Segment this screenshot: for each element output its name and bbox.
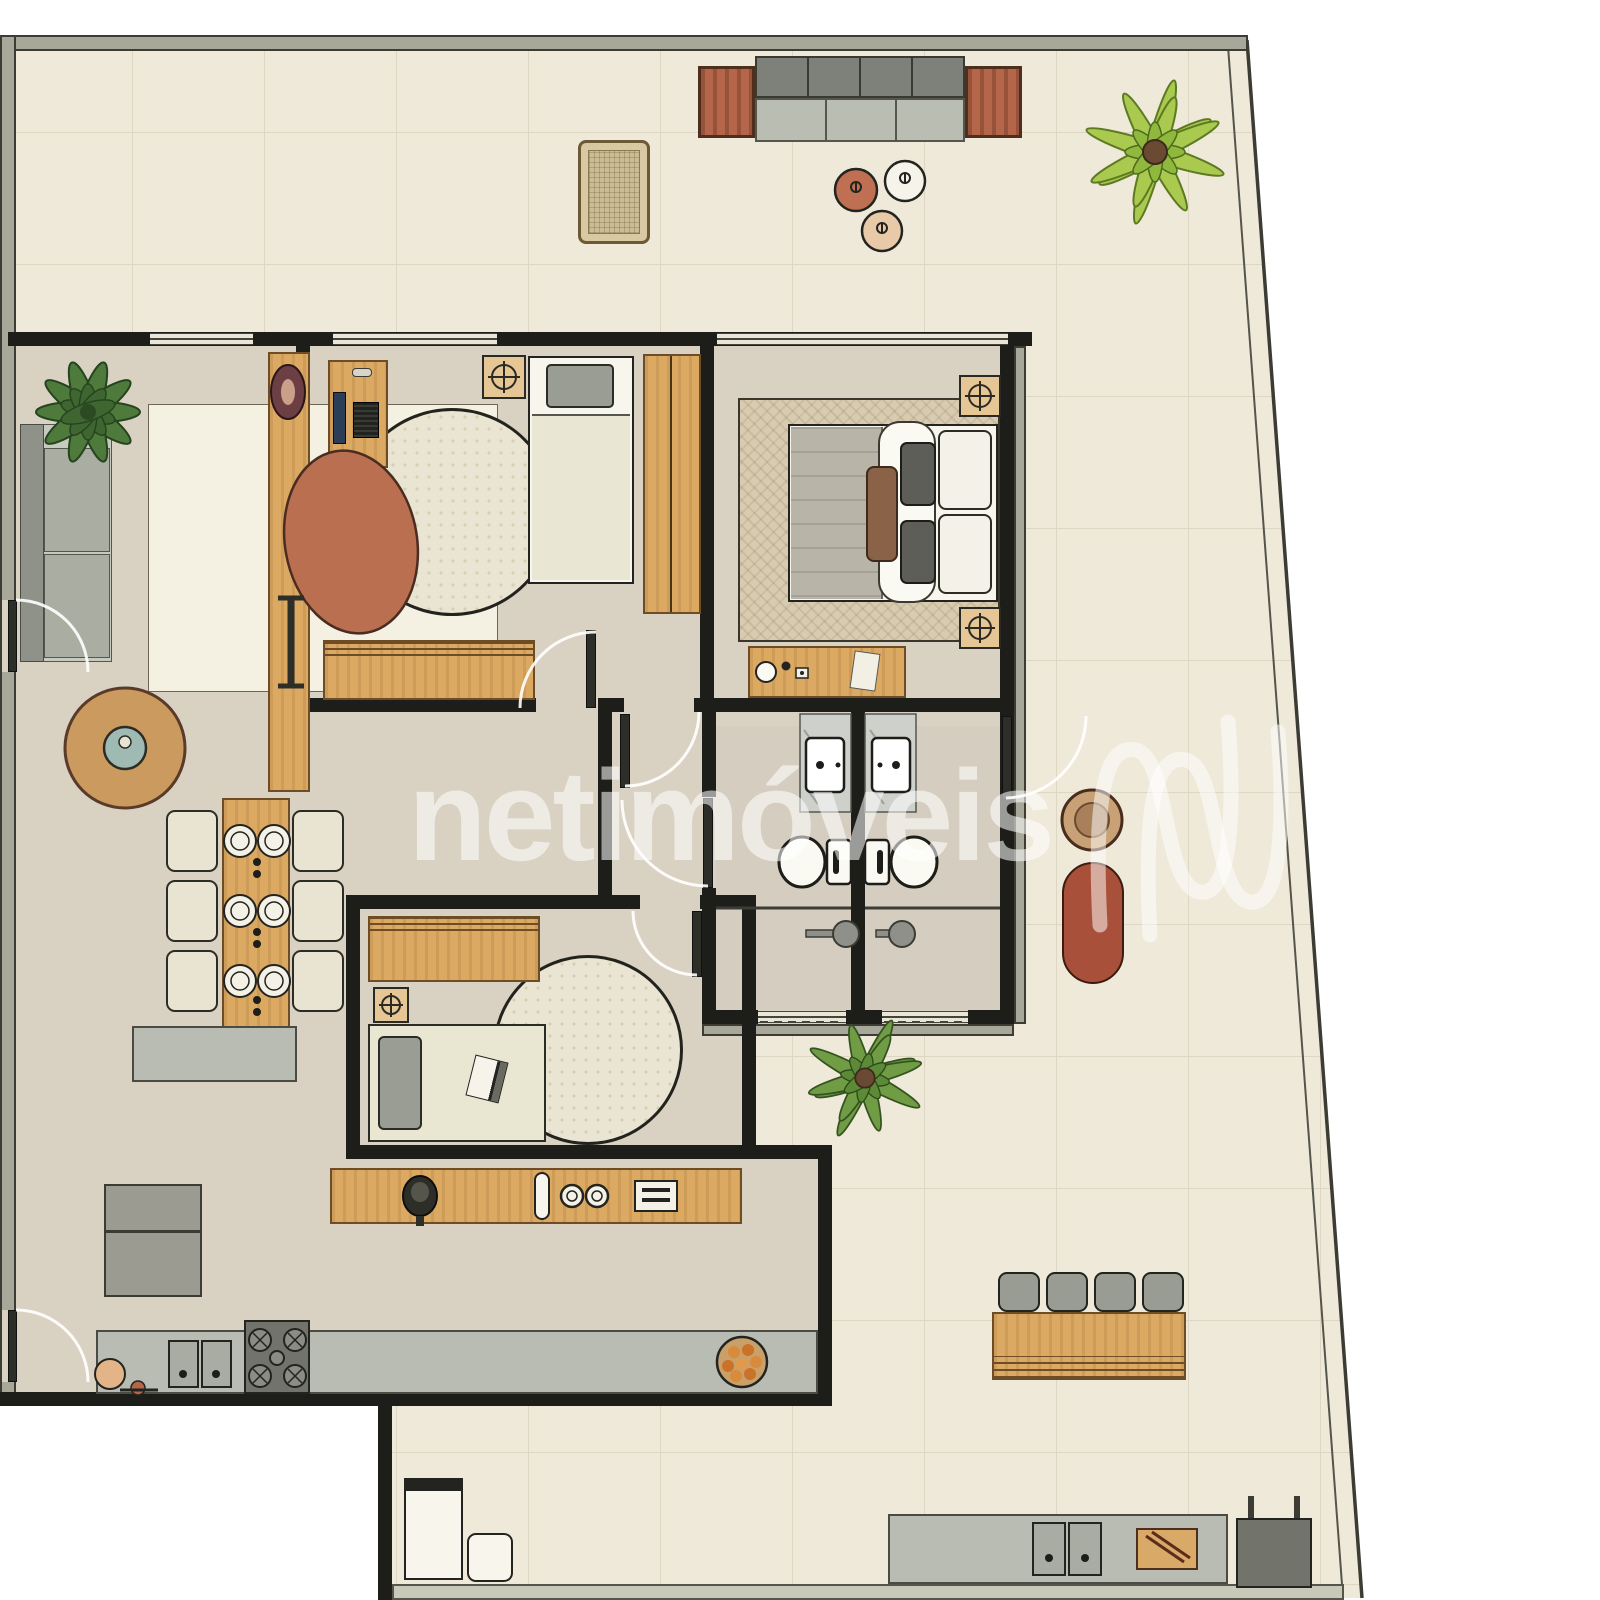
dining-chair (292, 810, 344, 872)
pouf-terracotta (835, 169, 877, 211)
bar-stool (1046, 1272, 1088, 1312)
grill (1236, 1518, 1312, 1588)
palm-plant-top (1084, 78, 1227, 226)
watermark-text: netimóveis (408, 742, 1052, 890)
bar-stool (1094, 1272, 1136, 1312)
desk-monitor (333, 392, 346, 444)
floor-plan: netimóveis (0, 0, 1600, 1600)
wall-east-outer (1014, 346, 1026, 1024)
master-pillow-gray-top (900, 442, 936, 506)
sofa-cushion-top (44, 448, 110, 552)
wall-kitchen-east (818, 1159, 832, 1406)
sofa-cushion-bottom (44, 554, 110, 658)
slanted-boundary-wall (1228, 40, 1362, 1598)
dining-table (222, 798, 290, 1034)
wardrobe-split (670, 356, 672, 612)
bar-stool (998, 1272, 1040, 1312)
toaster (634, 1180, 678, 1212)
bedroom2-door-leaf (586, 630, 596, 708)
gas-stove (244, 1320, 310, 1394)
window-bedroom2 (333, 333, 497, 345)
outdoor-sofa-back (755, 56, 965, 98)
washing-machine-panel (404, 1478, 463, 1491)
refrigerator-divider (106, 1230, 200, 1233)
pouf-beige (862, 211, 902, 251)
bedroom2-wardrobe (643, 354, 701, 614)
wall-bedroom2-master (700, 346, 714, 698)
window-living (150, 333, 253, 345)
kitchen-door-leaf (8, 1310, 17, 1382)
wall-east-upper (1000, 346, 1014, 1024)
wall-bedroom3-east (742, 909, 756, 1159)
sun-lounger (1062, 862, 1124, 984)
bottle (534, 1172, 550, 1220)
terrace-wall-top (8, 35, 1248, 51)
single-bed-blanket (532, 414, 630, 580)
wall-bedroom3-north-b (700, 895, 756, 909)
grill-handle-left (1248, 1496, 1254, 1518)
dining-chair (166, 880, 218, 942)
desk-phone (352, 368, 372, 377)
outdoor-side-table-right (965, 66, 1022, 138)
entry-door-leaf (8, 600, 17, 672)
desk-keyboard (353, 402, 379, 438)
dining-chair (166, 810, 218, 872)
dining-sideboard (132, 1026, 297, 1082)
sideboard-slats (325, 642, 533, 656)
wall-bedrooms-south-c (694, 698, 1014, 712)
dining-chair (292, 880, 344, 942)
window-master (717, 333, 1008, 345)
cutting-board (1136, 1528, 1198, 1570)
kitchen-sink-left (168, 1340, 199, 1388)
outdoor-sofa-seat (755, 98, 965, 142)
laundry-sink (467, 1533, 513, 1582)
pouf-white (885, 161, 925, 201)
master-pillow-white-bottom (938, 514, 992, 594)
dresser-paper (849, 650, 880, 691)
master-pillow-gray-bottom (900, 520, 936, 584)
wall-bedroom3-north-a (346, 895, 640, 909)
wall-laundry-west (378, 1406, 392, 1600)
master-dresser (748, 646, 906, 698)
tv-console (268, 352, 310, 792)
kitchen-sink-right (201, 1340, 232, 1388)
bedroom3-pillow (378, 1036, 422, 1130)
bedroom3-door-leaf (692, 911, 702, 977)
grill-handle-right (1294, 1496, 1300, 1518)
gourmet-sink-left (1032, 1522, 1066, 1576)
refrigerator (104, 1184, 202, 1297)
netimoveis-logo-icon (1098, 722, 1281, 935)
dining-chair (292, 950, 344, 1012)
master-pillow-white-top (938, 430, 992, 510)
bar-stool (1142, 1272, 1184, 1312)
credenza-slats (370, 918, 538, 931)
dining-chair (166, 950, 218, 1012)
wall-kitchen-south (0, 1392, 832, 1406)
wall-bath-south-c (968, 1010, 1014, 1024)
gourmet-sink-right (1068, 1522, 1102, 1576)
outdoor-side-table-left (698, 66, 755, 138)
lounge-chair-weave (588, 150, 640, 234)
washing-machine (404, 1478, 463, 1580)
terrace-wall-left (0, 35, 16, 1406)
bar-counter-slats (994, 1356, 1184, 1378)
sofa-back (20, 424, 44, 662)
wall-bedrooms-south-a (296, 698, 536, 712)
single-bed-pillow (546, 364, 614, 408)
window-bath1 (758, 1011, 846, 1023)
wall-bedroom3-south (346, 1145, 832, 1159)
wall-bedroom3-west (346, 895, 360, 1159)
round-decor (1062, 790, 1122, 850)
wall-bath-south-b (846, 1010, 882, 1024)
wall-bedrooms-south-b (598, 698, 624, 712)
master-pillow-brown (866, 466, 898, 562)
window-bath2 (882, 1011, 968, 1023)
terrace-wall-bottom (392, 1584, 1344, 1600)
